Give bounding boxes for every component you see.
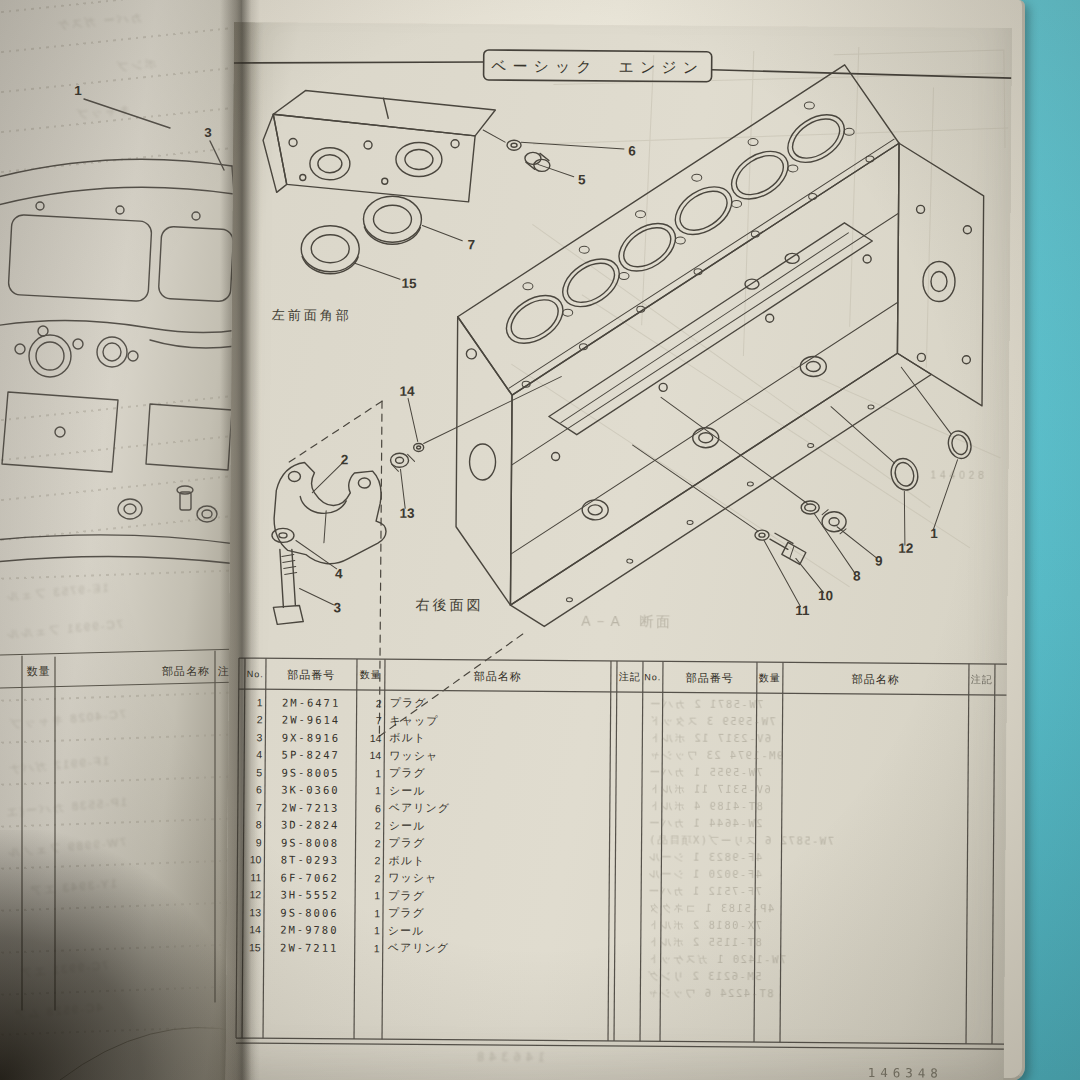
cell-part-name: プラグ <box>384 835 610 852</box>
cell-part-name: シール <box>384 818 610 835</box>
cell-part-number: 9S-8005 <box>265 766 356 779</box>
cell-qty: 1 <box>355 941 383 953</box>
header-part-name-2: 部品名称 <box>783 666 969 691</box>
cell-part-name: シール <box>384 783 610 800</box>
table-row: 142M-97801シール <box>243 921 609 941</box>
label-rear-right-view: 右後面図 <box>415 596 483 615</box>
cell-qty: 14 <box>356 731 384 743</box>
cell-part-name: キャップ <box>384 713 610 730</box>
cell-part-name: ワッシャ <box>384 748 610 765</box>
cell-qty: 2 <box>356 836 384 848</box>
callout-14: 14 <box>400 384 415 399</box>
header-no-2: No. <box>643 665 663 689</box>
book-photo-scene: カバー ガスケポンプキャップ1E-9753 フェル7C-9931 フェルル7C-… <box>0 0 1080 1080</box>
header-qty-2: 数量 <box>757 666 783 690</box>
ghost-row: 7F-7512 1 カバー <box>647 884 995 901</box>
cell-qty: 2 <box>356 819 384 831</box>
callout-8: 8 <box>853 568 861 583</box>
cell-qty: 14 <box>356 749 384 761</box>
table-row: 39X-891614ボルト <box>244 728 610 748</box>
callout-5: 5 <box>578 172 586 187</box>
cell-part-name: ワッシャ <box>383 870 609 887</box>
cell-qty: 1 <box>355 889 383 901</box>
label-front-left-corner: 左前面角部 <box>272 306 352 325</box>
ghost-row: 6V-5317 11 ボルト <box>648 782 996 799</box>
ghost-row: 4F-9823 1 シール <box>647 850 995 867</box>
header-part-number-2: 部品番号 <box>663 665 757 690</box>
cell-qty: 1 <box>356 766 384 778</box>
header-part-number: 部品番号 <box>266 662 357 687</box>
cell-part-number: 2M-6471 <box>266 696 357 709</box>
callout-6: 6 <box>628 144 636 159</box>
ghost-row: 6V-2317 12 ボルト <box>648 731 996 748</box>
footer-number-ghost: 146348 <box>472 1050 545 1065</box>
cell-qty: 1 <box>355 906 383 918</box>
cell-part-name: ベアリング <box>383 940 609 957</box>
ghost-row: 8T-4224 6 ワッシャ <box>646 986 994 1003</box>
header-part-name: 部品名称 <box>385 663 611 689</box>
table-row: 139S-80061プラグ <box>243 903 609 923</box>
cell-part-number: 2W-7213 <box>265 801 356 814</box>
cell-qty: 6 <box>356 801 384 813</box>
left-header-part-name: 部品名称 <box>58 658 216 684</box>
cell-qty: 7 <box>356 714 384 726</box>
cell-qty: 2 <box>355 854 383 866</box>
callout-2: 2 <box>341 452 349 467</box>
ghost-row: 4F-9020 1 シール <box>647 867 995 884</box>
cell-part-name: プラグ <box>384 765 610 782</box>
callout-4: 4 <box>335 566 343 581</box>
callout-1: 1 <box>74 83 82 98</box>
ghost-row: 7W-5959 3 スタッド <box>648 714 996 731</box>
callout-13: 13 <box>400 506 415 521</box>
cell-part-number: 9X-8916 <box>265 731 356 744</box>
table-row: 45P-824714ワッシャ <box>244 746 610 766</box>
cell-qty: 2 <box>357 696 385 708</box>
footer-number: 146348 <box>868 1065 943 1080</box>
table-row: 116F-70622ワッシャ <box>243 868 609 888</box>
table-row: 63K-03601シール <box>244 781 610 801</box>
ghost-number: 144028 <box>930 469 987 480</box>
callout-3: 3 <box>334 600 342 615</box>
callout-9: 9 <box>875 554 883 569</box>
ghost-row: 4P-5183 1 コネクタ <box>647 901 995 918</box>
table-row: 22W-96147キャップ <box>244 711 610 731</box>
label-section-ghost: A－A 断面 <box>581 613 673 632</box>
cell-qty: 1 <box>355 924 383 936</box>
cell-part-number: 3K-0360 <box>265 783 356 796</box>
cell-part-name: ボルト <box>384 730 610 747</box>
header-qty: 数量 <box>357 663 385 687</box>
ghost-row: 8T-4189 4 ボルト <box>648 799 996 816</box>
cell-part-name: プラグ <box>385 695 611 712</box>
callout-11: 11 <box>795 603 809 618</box>
table-row: 99S-80082プラグ <box>243 833 609 853</box>
cell-qty: 1 <box>356 784 384 796</box>
bottom-left-shadow <box>0 830 280 1080</box>
table-row: 152W-72111ベアリング <box>243 938 609 958</box>
header-note-2: 注記 <box>617 665 643 689</box>
table-row: 12M-64712プラグ <box>245 693 611 713</box>
cell-part-name: ベアリング <box>384 800 610 817</box>
callout-7: 7 <box>467 237 475 252</box>
ghost-row: 7W-5871 2 カバー <box>649 697 997 714</box>
table-row: 72W-72136ベアリング <box>244 798 610 818</box>
left-header-qty: 数量 <box>22 658 55 684</box>
callout-10: 10 <box>818 588 833 603</box>
right-page: ベーシック エンジン 左前面角部 右後面図 A－A 断面 144028 6571… <box>226 22 1012 1080</box>
ghost-row: 5M-6213 2 リング <box>646 969 994 986</box>
ghost-row: 7X-0818 2 ボルト <box>647 918 995 935</box>
ghost-row: 9M-1974 23 ワッシャ <box>648 748 996 765</box>
callout-3: 3 <box>204 125 212 140</box>
callout-12: 12 <box>898 541 913 556</box>
ghost-row: 7W-1420 1 ガスケット <box>647 952 995 969</box>
cell-part-name: プラグ <box>383 905 609 922</box>
table-row: 59S-80051プラグ <box>244 763 610 783</box>
ghost-row: 8T-1155 2 ボルト <box>647 935 995 952</box>
header-note-3: 注記 <box>969 668 995 692</box>
table-row: 123H-55521プラグ <box>243 886 609 906</box>
ghost-row: 2W-4644 1 カバー <box>648 816 996 833</box>
ghost-row: 7W-5955 1 カバー <box>648 765 996 782</box>
cell-part-name: ボルト <box>383 853 609 870</box>
cell-part-name: シール <box>383 923 609 940</box>
table-row: 83D-28242シール <box>244 816 610 836</box>
callout-1: 1 <box>930 526 938 541</box>
page-title: ベーシック エンジン <box>484 52 712 82</box>
cell-part-number: 5P-8247 <box>265 748 356 761</box>
cell-part-number: 2W-9614 <box>265 713 356 726</box>
callout-15: 15 <box>401 276 416 291</box>
cell-qty: 2 <box>355 871 383 883</box>
table-row: 108T-02932ボルト <box>243 851 609 871</box>
cell-part-name: プラグ <box>383 888 609 905</box>
ghost-row: 7W-5872 6 スリーブ(X項目品) <box>648 833 996 850</box>
